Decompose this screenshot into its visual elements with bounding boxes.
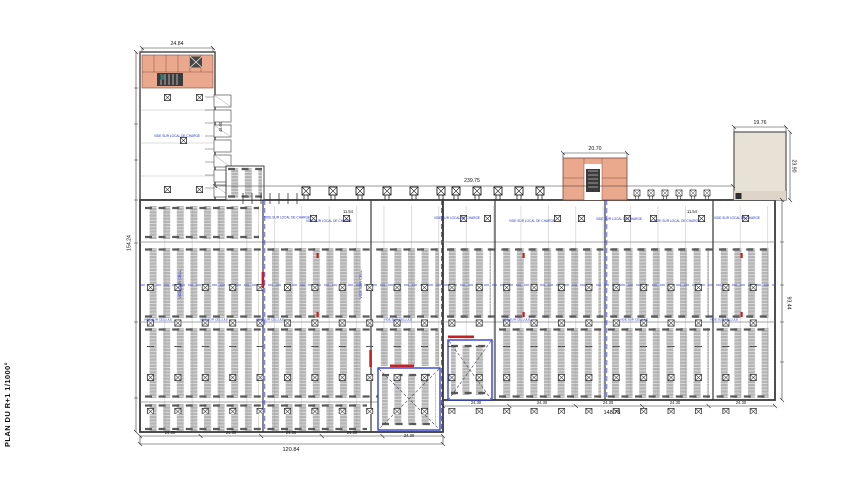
annotation-note: VIDE SUR LOCAL DE CHARGE xyxy=(654,219,700,223)
tower-office-block xyxy=(142,55,213,88)
annotation-cell: VIDE SUR CELLULE xyxy=(384,318,412,322)
dim-overall-width: 239.75 xyxy=(464,178,480,184)
dim-bottom-left-overall: 120.84 xyxy=(282,447,299,453)
dim-small-bay: 11.54 xyxy=(343,209,354,214)
annotation-note: VIDE SUR LOCAL DE CHARGE xyxy=(596,217,642,221)
annotation-note: VIDE SUR LOCAL DE CHARGE xyxy=(306,219,352,223)
annotation-vide: VIDE SUR CELL. xyxy=(178,269,182,299)
dim-bay-label: 24.30 xyxy=(603,400,614,405)
annotation-cell: VIDE SUR CELLULE xyxy=(710,318,738,322)
dim-bottom-right-overall: 148.75 xyxy=(603,410,620,416)
dim-left-height: 154.24 xyxy=(127,235,133,251)
annotation-note: VIDE SUR LOCAL DE CHARGE xyxy=(264,216,310,220)
dim-mid-annex-width: 20.70 xyxy=(589,146,602,152)
right-annex xyxy=(734,132,786,200)
dim-bay-label: 24.30 xyxy=(347,430,358,435)
dim-bay-label: 24.30 xyxy=(471,400,482,405)
mid-annex xyxy=(563,158,627,200)
dim-bay-label: 24.30 xyxy=(736,400,747,405)
dim-bay-label: 24.30 xyxy=(537,400,548,405)
dim-small-bay: 11.54 xyxy=(687,209,698,214)
annotation-cell: VIDE SUR CELLULE xyxy=(256,318,284,322)
dim-tower-width: 24.84 xyxy=(171,41,184,47)
annotation-cell: VIDE SUR CELLULE xyxy=(144,318,172,322)
dim-bay-label: 24.30 xyxy=(226,430,237,435)
dim-tower-side: 45.00 xyxy=(218,121,223,132)
dim-right-annex-height: 23.90 xyxy=(791,160,797,173)
annotation-cell: VIDE SUR CELLULE xyxy=(502,318,530,322)
annotation-cell: VIDE SUR CELLULE xyxy=(200,318,228,322)
dim-right-height: 93.44 xyxy=(786,297,792,310)
annotation-vide: VIDE SUR CELL. xyxy=(359,269,363,299)
floor-plan-drawing: 24.84 20.70 19.76 23.90 239.75 154.24 93… xyxy=(0,0,850,502)
dim-bay-label: 24.30 xyxy=(670,400,681,405)
dim-right-annex-width: 19.76 xyxy=(754,120,767,126)
annotation-note: VIDE SUR LOCAL DE CHARGE xyxy=(154,134,200,138)
dim-bay-label: 24.30 xyxy=(165,430,176,435)
annotation-note: VIDE SUR LOCAL DE CHARGE xyxy=(714,216,760,220)
dim-bay-label: 24.30 xyxy=(286,430,297,435)
annotation-cell: VIDE SUR CELLULE xyxy=(620,318,648,322)
floor-plan-sheet: PLAN DU R+1 1/1000° xyxy=(0,0,850,502)
annotation-note: VIDE SUR LOCAL DE CHARGE xyxy=(434,216,480,220)
dim-bay-label: 24.30 xyxy=(404,433,415,438)
annotation-note: VIDE SUR LOCAL DE CHARGE xyxy=(509,219,555,223)
stair-block xyxy=(586,169,600,192)
